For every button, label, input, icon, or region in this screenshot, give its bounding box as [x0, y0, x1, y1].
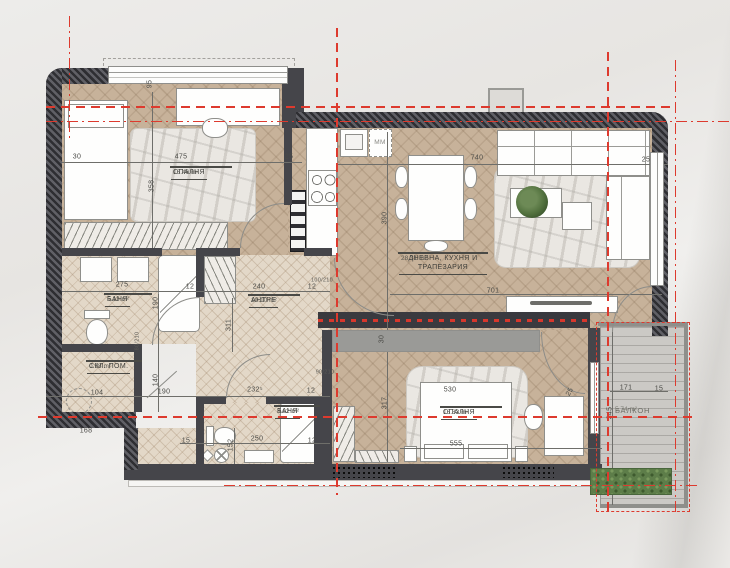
- tv-icon: [530, 301, 592, 305]
- wall-hall-living-stub: [304, 248, 332, 256]
- dimension-label: 168: [80, 428, 93, 435]
- sink-2-icon: [244, 450, 274, 463]
- washing-machine-label: MM: [374, 140, 385, 147]
- plant-icon: [516, 186, 548, 218]
- dimension-line: [400, 448, 602, 449]
- wall-bathroom2-left: [196, 396, 204, 464]
- dining-chair-icon: [464, 166, 477, 188]
- wall-bedroom1-kitchen: [284, 84, 292, 205]
- room-label-storage: СКЛ. ПОМ. 0.98 m²: [86, 360, 142, 362]
- wall-storage-top: [62, 344, 142, 352]
- wardrobe-1-icon: [64, 222, 228, 250]
- fan-symbol-icon: [214, 448, 229, 463]
- vanity-sink-1-icon: [80, 257, 112, 282]
- bed-2-pillow: [424, 444, 464, 459]
- dining-chair-icon: [395, 166, 408, 188]
- exterior-wall-bottom-left: [46, 412, 136, 428]
- dimension-line: [62, 162, 302, 163]
- dimension-line: [390, 294, 662, 295]
- stove-icon: [308, 170, 337, 206]
- room-area: 5.13 m²: [105, 294, 131, 305]
- hall-wardrobe-icon: [204, 256, 236, 304]
- room-area: 28.31 m²: [399, 253, 429, 264]
- room-label-bathroom-2: БАНЯ 3.62 m²: [274, 405, 320, 407]
- room-label-hallway: АНТРЕ 10.10 m²: [248, 294, 300, 296]
- room-label-living: ДНЕВНА, КУХНЯ И ТРАПЕЗАРИЯ 28.31 m²: [398, 252, 488, 254]
- section-line: [46, 106, 672, 108]
- living-window: [650, 152, 664, 286]
- room-area: 0.98 m²: [87, 361, 113, 372]
- room-label-bathroom-1: БАНЯ 5.13 m²: [104, 293, 152, 295]
- dining-chair-icon: [424, 240, 448, 252]
- desk-2-icon: [544, 396, 584, 456]
- wall-section-marker-2: [502, 466, 554, 478]
- section-line: [46, 121, 730, 122]
- room-label-bedroom-2: СПАЛНЯ 16.83 m²: [440, 406, 502, 408]
- bedroom-2-closet: [332, 330, 540, 352]
- chimney: [488, 88, 524, 114]
- toilet-1-icon: [86, 319, 108, 345]
- wall-lower-left: [124, 428, 138, 470]
- dining-chair-icon: [395, 198, 408, 220]
- floor-plan: MM СПАЛНЯ 16.46 m²: [0, 0, 730, 568]
- shelf-unit-icon: [290, 190, 306, 252]
- toilet-1-tank: [84, 310, 110, 319]
- bedroom-2-wardrobe-icon-2: [355, 450, 399, 463]
- storage-door-leaf: [147, 371, 178, 399]
- dining-chair-icon: [464, 198, 477, 220]
- hallway-floor-lower: [138, 428, 204, 465]
- exterior-wall-top-right: [296, 112, 668, 128]
- sofa-chaise-icon: [606, 176, 650, 260]
- section-line: [336, 28, 338, 495]
- kitchen-sink-bowl: [345, 134, 363, 150]
- vanity-sink-2-icon: [117, 257, 149, 282]
- dimension-line: [62, 291, 330, 292]
- room-area: 10.10 m²: [249, 295, 279, 306]
- wall-bedroom1-hall-2: [62, 248, 162, 256]
- room-label-bedroom-1: СПАЛНЯ 16.46 m²: [170, 166, 232, 168]
- dimension-line: [46, 396, 330, 397]
- dimension-line: [158, 294, 159, 412]
- section-line: [69, 16, 70, 140]
- bedroom-1-window: [108, 66, 288, 84]
- dimension-line: [234, 428, 235, 464]
- side-table-icon: [562, 202, 592, 230]
- bed-2-pillow: [468, 444, 508, 459]
- balcony-section-outline: [596, 322, 690, 512]
- dimension-label: 190: [158, 389, 171, 396]
- wall-section-marker-1: [332, 466, 398, 478]
- washer-slot-icon: [66, 388, 92, 414]
- wall-hall-bedroom2: [318, 312, 590, 328]
- dimension-line: [232, 298, 233, 352]
- room-area: 16.46 m²: [171, 167, 201, 178]
- sofa-icon: [497, 130, 650, 176]
- dimension-line: [180, 443, 330, 444]
- dining-table-icon: [408, 155, 464, 241]
- dimension-line: [152, 92, 153, 248]
